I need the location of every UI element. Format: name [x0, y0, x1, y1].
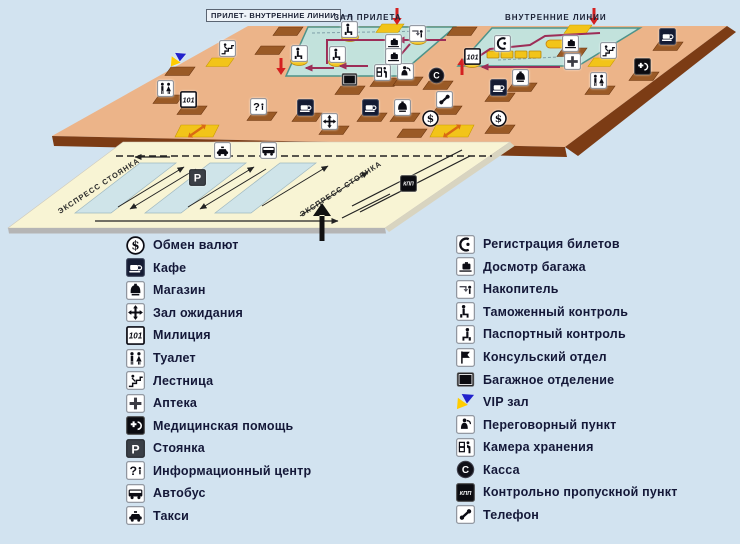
bagcheck-icon	[456, 257, 475, 276]
cafe-icon	[362, 99, 379, 116]
svg-text:101: 101	[466, 52, 478, 61]
legend-item: Магазин	[126, 279, 311, 302]
toilet-icon	[590, 72, 607, 89]
svg-text:?: ?	[129, 464, 137, 478]
bagcheck-icon	[385, 48, 402, 65]
police101-icon: 101	[126, 326, 145, 345]
shop-icon	[126, 281, 145, 300]
legend-item: Консульский отдел	[456, 346, 678, 369]
legend-label: Зал ожидания	[153, 306, 243, 320]
legend-label: Кафе	[153, 261, 186, 275]
svg-text:$: $	[494, 112, 501, 125]
svg-text:C: C	[433, 70, 440, 80]
map-base-graphics: ЭКСПРЕСС СТОЯНКА ЭКСПРЕСС СТОЯНКА	[0, 0, 740, 246]
legend-label: Переговорный пункт	[483, 418, 616, 432]
legend-item: Зал ожидания	[126, 302, 311, 325]
domestic-lines-label: ВНУТРЕННИЕ ЛИНИИ	[505, 13, 607, 22]
dollar-icon: $	[126, 236, 145, 255]
stairs-icon	[219, 40, 236, 57]
legend-item: Телефон	[456, 504, 678, 527]
checkin-counter	[501, 51, 513, 58]
toilet-icon	[157, 80, 174, 97]
stairs-icon	[126, 371, 145, 390]
legend-item: Медицинская помощь	[126, 414, 311, 437]
waiting-icon	[126, 303, 145, 322]
legend-item: Кафе	[126, 257, 311, 280]
svg-text:P: P	[131, 442, 139, 456]
bagdept-icon	[456, 370, 475, 389]
customs-icon	[456, 302, 475, 321]
kassa-icon: C	[456, 460, 475, 479]
terminal-map: ЭКСПРЕСС СТОЯНКА ЭКСПРЕСС СТОЯНКА ПРИЛЕТ…	[0, 0, 740, 246]
svg-text:101: 101	[182, 95, 194, 104]
checkin-counter	[529, 51, 541, 58]
svg-text:101: 101	[129, 332, 143, 341]
checkin-counter	[515, 51, 527, 58]
kassa-icon: C	[428, 67, 445, 84]
svg-text:C: C	[462, 465, 469, 476]
legend-label: Камера хранения	[483, 440, 594, 454]
bagcheck-icon	[562, 35, 579, 52]
legend-label: Регистрация билетов	[483, 237, 620, 251]
svg-text:$: $	[426, 112, 433, 125]
arrivals-domestic-boxed-label: ПРИЛЕТ- ВНУТРЕННИЕ ЛИНИИ	[206, 9, 341, 22]
legend-item: Регистрация билетов	[456, 233, 678, 256]
legend-label: Обмен валют	[153, 238, 239, 252]
legend-label: Телефон	[483, 508, 539, 522]
legend-label: Досмотр багажа	[483, 260, 586, 274]
legend-item: Такси	[126, 505, 311, 528]
police101-icon: 101	[464, 48, 481, 65]
nakopitel-icon	[409, 25, 426, 42]
legend-item: Таможенный контроль	[456, 301, 678, 324]
legend-label: Медицинская помощь	[153, 419, 293, 433]
legend-item: Паспортный контроль	[456, 323, 678, 346]
legend-label: Туалет	[153, 351, 196, 365]
registration-icon	[494, 35, 511, 52]
legend-label: Аптека	[153, 396, 197, 410]
passport-icon	[456, 325, 475, 344]
phone-icon	[456, 505, 475, 524]
legend-label: Автобус	[153, 486, 206, 500]
legend-label: Контрольно пропускной пункт	[483, 485, 678, 499]
legend-label: Лестница	[153, 374, 213, 388]
airport-terminal-scheme: ЭКСПРЕСС СТОЯНКА ЭКСПРЕСС СТОЯНКА ПРИЛЕТ…	[0, 0, 740, 544]
registration-icon	[456, 235, 475, 254]
info-icon: ?	[250, 98, 267, 115]
vip-icon	[456, 393, 475, 412]
peregovorny-icon	[397, 63, 414, 80]
legend-item: КПП Контрольно пропускной пункт	[456, 481, 678, 504]
svg-text:?: ?	[253, 101, 260, 113]
police101-icon: 101	[180, 91, 197, 108]
legend-item: $ Обмен валют	[126, 234, 311, 257]
svg-text:КПП: КПП	[403, 181, 414, 187]
legend-label: Информационный центр	[153, 464, 311, 478]
shop-icon	[512, 69, 529, 86]
kpp-icon: КПП	[456, 483, 475, 502]
legend-label: Магазин	[153, 283, 206, 297]
legend-item: Переговорный пункт	[456, 413, 678, 436]
bus-icon	[260, 142, 277, 159]
legend-item: 101 Милиция	[126, 324, 311, 347]
kamera-icon	[374, 64, 391, 81]
taxi-icon	[214, 142, 231, 159]
kpp-icon: КПП	[400, 175, 417, 192]
cafe-icon	[297, 99, 314, 116]
customs-icon	[329, 46, 346, 63]
checkin-counter	[487, 51, 499, 58]
bagdept-icon	[341, 71, 358, 88]
legend-label: Милиция	[153, 328, 211, 342]
legend-label: Паспортный контроль	[483, 327, 626, 341]
legend-item: ? Информационный центр	[126, 459, 311, 482]
svg-text:КПП: КПП	[460, 491, 473, 497]
dollar-icon: $	[490, 110, 507, 127]
legend-item: Автобус	[126, 482, 311, 505]
legend-item: VIP зал	[456, 391, 678, 414]
legend-column-left: $ Обмен валют Кафе Магазин Зал ожидания …	[126, 234, 311, 527]
legend-label: VIP зал	[483, 395, 529, 409]
cafe-icon	[126, 258, 145, 277]
parking-icon: P	[189, 169, 206, 186]
nakopitel-icon	[456, 280, 475, 299]
vip-icon	[170, 52, 187, 69]
medical-icon	[634, 58, 651, 75]
legend-label: Стоянка	[153, 441, 205, 455]
legend-item: Багажное отделение	[456, 368, 678, 391]
dollar-icon: $	[422, 110, 439, 127]
medical-icon	[126, 416, 145, 435]
legend-item: P Стоянка	[126, 437, 311, 460]
stairs-icon	[600, 42, 617, 59]
legend-item: Камера хранения	[456, 436, 678, 459]
pharmacy-icon	[126, 394, 145, 413]
customs-icon	[291, 45, 308, 62]
svg-text:$: $	[131, 238, 139, 252]
legend-item: Досмотр багажа	[456, 256, 678, 279]
kamera-icon	[456, 438, 475, 457]
legend-label: Накопитель	[483, 282, 559, 296]
customs-icon	[341, 21, 358, 38]
consular-icon	[456, 348, 475, 367]
bus-icon	[126, 484, 145, 503]
legend-item: Туалет	[126, 347, 311, 370]
legend-label: Багажное отделение	[483, 373, 614, 387]
parking-icon: P	[126, 439, 145, 458]
legend-item: Лестница	[126, 369, 311, 392]
legend-item: C Касса	[456, 458, 678, 481]
cafe-icon	[659, 28, 676, 45]
svg-text:P: P	[193, 172, 200, 184]
legend-item: Аптека	[126, 392, 311, 415]
legend-column-right: Регистрация билетов Досмотр багажа Накоп…	[456, 233, 678, 526]
shop-icon	[394, 99, 411, 116]
peregovorny-icon	[456, 415, 475, 434]
legend-item: Накопитель	[456, 278, 678, 301]
waiting-icon	[321, 113, 338, 130]
pharmacy-icon	[564, 53, 581, 70]
info-icon: ?	[126, 461, 145, 480]
toilet-icon	[126, 349, 145, 368]
legend-label: Такси	[153, 509, 189, 523]
taxi-icon	[126, 506, 145, 525]
legend-label: Консульский отдел	[483, 350, 607, 364]
phone-icon	[436, 91, 453, 108]
legend-label: Касса	[483, 463, 520, 477]
legend-label: Таможенный контроль	[483, 305, 628, 319]
cafe-icon	[490, 79, 507, 96]
